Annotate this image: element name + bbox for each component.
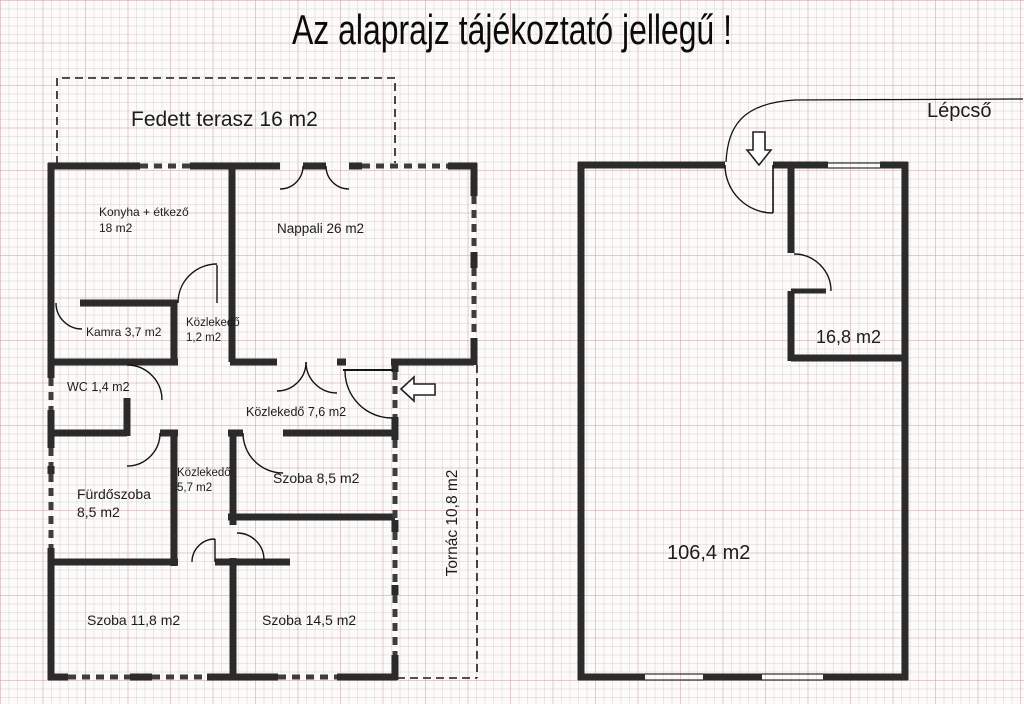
stairs-label: Lépcső [927,98,992,124]
room-area: 1,2 m2 [186,331,240,346]
room-area: 26 m2 [327,221,365,236]
room-label-kozlekedo-kozep: Közlekedő 5,7 m2 [177,466,231,496]
room-name: Tornác [444,530,461,577]
room-area: 14,5 m2 [306,612,357,628]
right-building-walls [578,162,908,680]
room-label-kozlekedo-kis: Közlekedő 1,2 m2 [186,316,240,346]
room-area: 8,5 m2 [77,503,151,521]
room-label-szoba-85: Szoba 8,5 m2 [273,469,359,487]
room-name: Közlekedő [177,466,231,481]
entrance-arrow-left-icon [401,377,435,401]
left-building-windows [51,166,474,677]
room-area: 16,8 m2 [816,327,881,347]
room-label-konyha: Konyha + étkező 18 m2 [99,205,189,236]
room-area: 18 m2 [99,221,189,237]
room-name: Nappali [277,221,323,236]
room-area: 3,7 m2 [125,325,162,339]
room-label-emeleti-szoba: 16,8 m2 [816,326,881,349]
room-name: Szoba [262,612,302,628]
room-name: Szoba [273,470,313,486]
room-label-wc: WC 1,4 m2 [67,379,130,395]
room-name: Kamra [86,325,121,339]
room-area: 8,5 m2 [317,470,360,486]
room-area: 16 m2 [259,108,317,131]
right-building-windows [645,163,880,680]
room-label-fedett-terasz: Fedett terasz 16 m2 [131,106,318,133]
room-name: Közlekedő [246,405,304,419]
room-label-kozlekedo-nagy: Közlekedő 7,6 m2 [246,404,346,420]
room-area: 7,6 m2 [308,405,346,419]
room-area: 1,4 m2 [91,380,129,394]
room-name: WC [67,380,88,394]
room-name: Fürdőszoba [77,485,151,503]
entrance-arrow-down-icon [747,132,771,165]
room-label-nappali: Nappali 26 m2 [277,220,364,238]
room-name: Fedett terasz [131,108,254,131]
room-area: 5,7 m2 [177,481,231,496]
room-label-furdoszoba: Fürdőszoba 8,5 m2 [77,485,151,521]
right-building-doors [725,165,831,291]
left-building-walls [48,163,477,680]
porch-outline [397,365,477,678]
room-area: 106,4 m2 [667,542,750,564]
room-name: Szoba [87,612,127,628]
room-label-emeleti-ter: 106,4 m2 [667,540,750,566]
floorplan-page: Az alaprajz tájékoztató jellegű ! [0,0,1024,704]
room-area: 10,8 m2 [444,470,461,526]
room-label-tornac: Tornác 10,8 m2 [443,470,463,577]
room-name: Konyha + étkező [99,205,189,221]
room-label-kamra: Kamra 3,7 m2 [86,325,161,341]
room-label-szoba-118: Szoba 11,8 m2 [87,611,180,629]
room-area: 11,8 m2 [131,612,181,628]
room-label-szoba-145: Szoba 14,5 m2 [262,611,356,629]
room-name: Közlekedő [186,316,240,331]
